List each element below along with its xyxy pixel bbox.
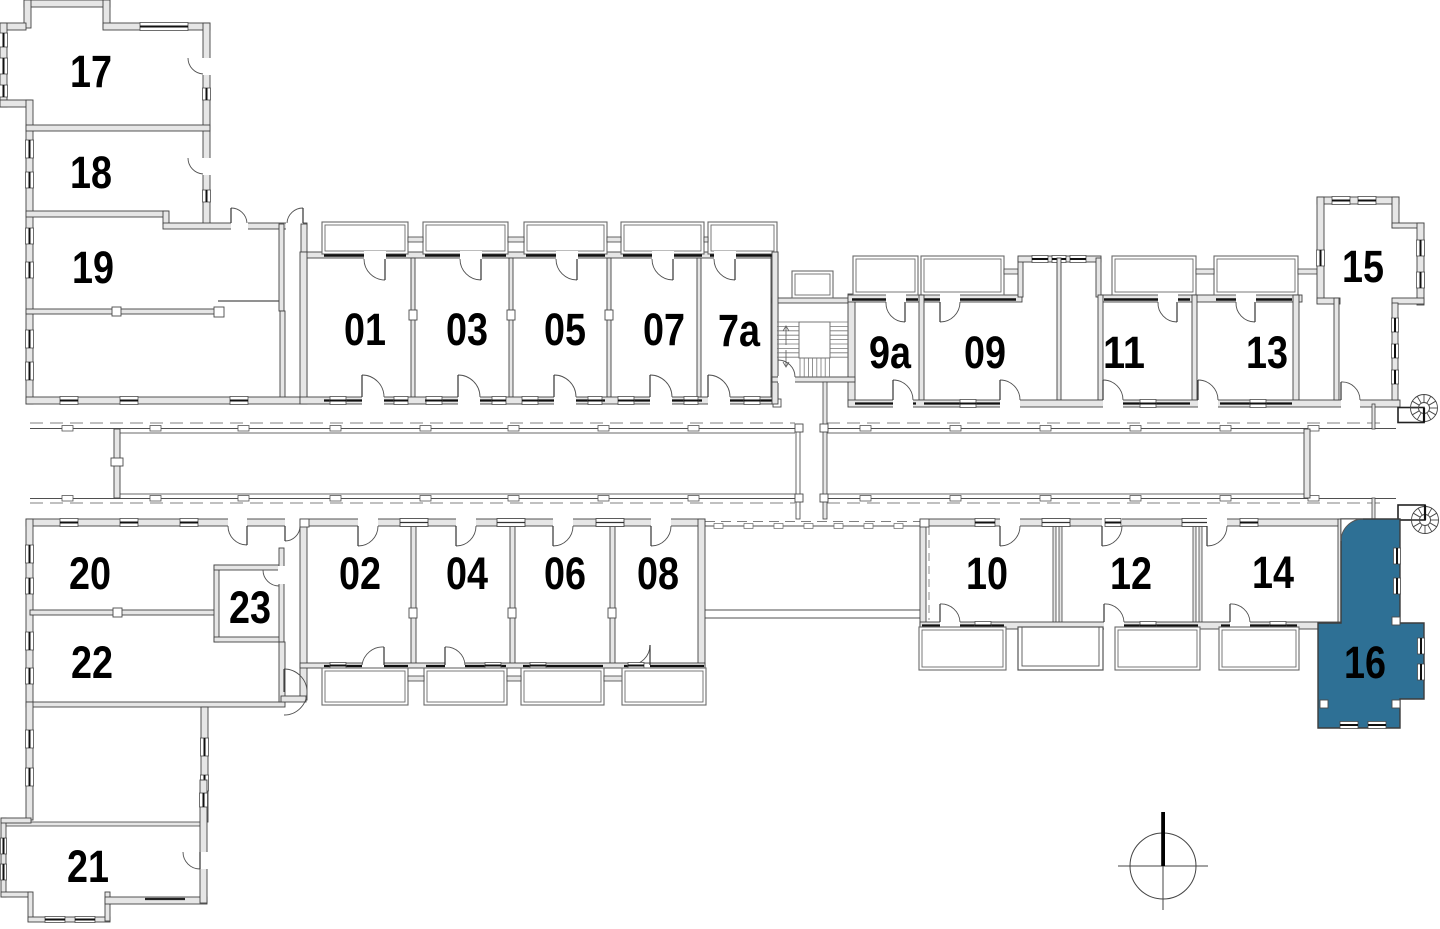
svg-text:9a: 9a — [869, 327, 912, 378]
svg-text:19: 19 — [72, 242, 114, 293]
svg-text:18: 18 — [70, 147, 112, 198]
svg-text:21: 21 — [67, 841, 109, 892]
svg-text:13: 13 — [1246, 327, 1288, 378]
svg-text:23: 23 — [229, 582, 271, 633]
svg-text:01: 01 — [344, 304, 386, 355]
svg-text:12: 12 — [1110, 548, 1152, 599]
svg-text:04: 04 — [446, 548, 488, 599]
svg-text:03: 03 — [446, 304, 488, 355]
svg-text:20: 20 — [69, 548, 111, 599]
svg-text:09: 09 — [964, 327, 1006, 378]
svg-text:16: 16 — [1344, 637, 1386, 688]
svg-text:17: 17 — [70, 46, 112, 97]
svg-text:11: 11 — [1103, 327, 1145, 378]
svg-text:02: 02 — [339, 548, 381, 599]
svg-text:14: 14 — [1252, 547, 1294, 598]
svg-text:07: 07 — [643, 304, 685, 355]
svg-text:15: 15 — [1342, 241, 1384, 292]
svg-text:05: 05 — [544, 304, 586, 355]
svg-text:7a: 7a — [718, 305, 761, 356]
svg-text:08: 08 — [637, 548, 679, 599]
svg-text:10: 10 — [966, 548, 1008, 599]
svg-text:06: 06 — [544, 548, 586, 599]
svg-text:22: 22 — [71, 637, 113, 688]
